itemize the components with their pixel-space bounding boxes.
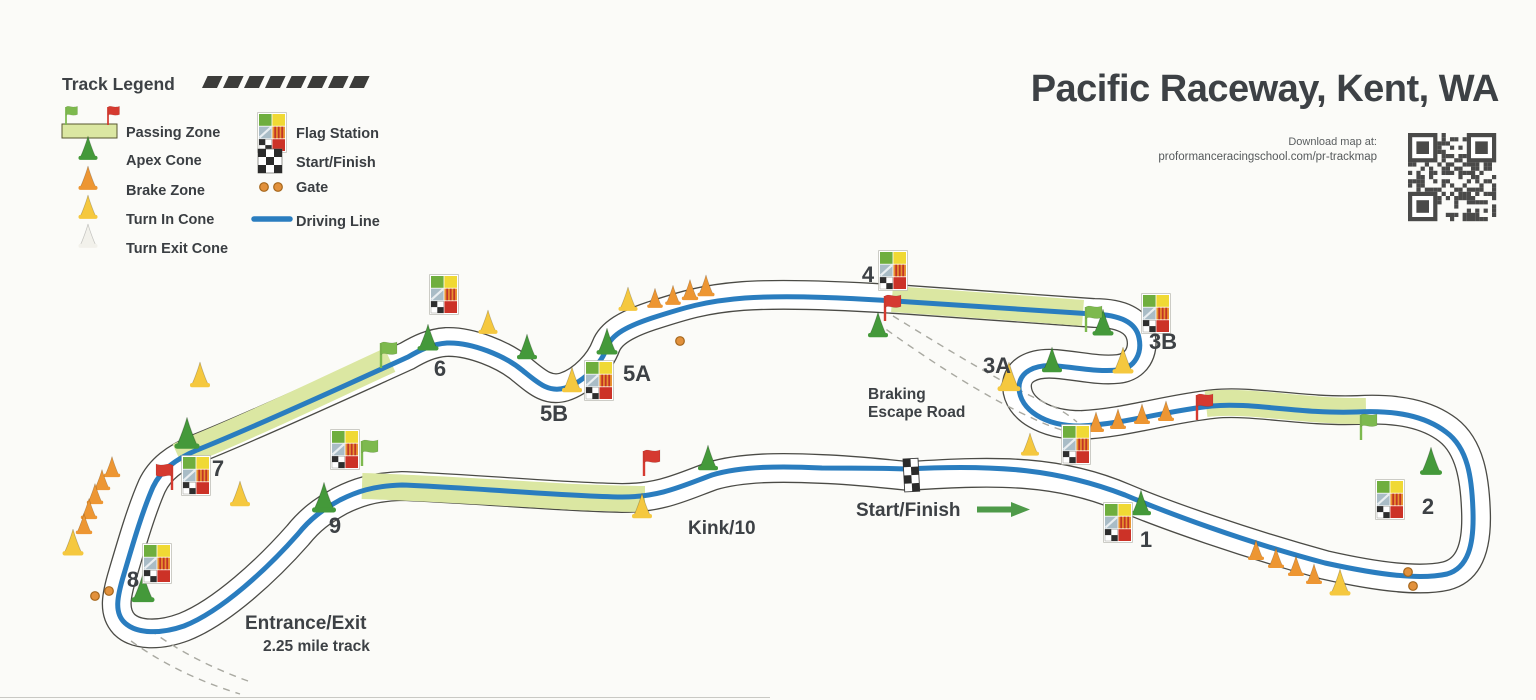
kink-label: Kink/10 [688,518,756,539]
apex-cone-marker [517,334,537,359]
apex-cone-marker [1420,447,1442,475]
flag-station-marker [143,544,172,584]
turnin-cone-marker [619,287,638,311]
legend-item-passing-zone: Passing Zone [126,125,220,141]
flag-station-marker [1376,480,1405,520]
turn-in-cone-icon [79,195,98,219]
turnin-cone-marker [190,362,210,387]
legend-item-turn-in-cone: Turn In Cone [126,212,214,228]
red-flag-marker [644,450,660,476]
start-finish-direction-arrow [977,502,1030,517]
flag-station-marker [182,456,211,496]
turn-label-1: 1 [1140,527,1152,552]
legend-item-brake-zone: Brake Zone [126,183,205,199]
gate-icon [260,183,283,192]
turn-label-9: 9 [329,513,341,538]
start-finish-band [903,458,920,492]
legend-item-flag-station: Flag Station [296,126,379,142]
flag-station-marker [1142,294,1171,334]
entrance-exit-road-line [131,641,240,694]
flag-station-marker [331,430,360,470]
turn-label-2: 2 [1422,494,1434,519]
gate-marker [1404,568,1413,577]
download-url: proformanceracingschool.com/pr-trackmap [1158,151,1377,163]
qr-code [1408,133,1496,221]
track-road [117,295,1476,634]
green-flag-marker [362,440,378,466]
turnin-cone-marker [230,481,250,506]
apex-cone-icon [79,136,98,160]
braking-escape-label-line2: Escape Road [868,404,965,421]
track-map-page: 123A3B45A5B6789 Start/Finish Kink/10 Bra… [0,0,1536,700]
flag-station-marker [1104,503,1133,543]
gate-marker [676,337,685,346]
track-length-label: 2.25 mile track [263,638,370,655]
page-title: Pacific Raceway, Kent, WA [1031,68,1499,110]
gate-marker [105,587,114,596]
legend: Track Legend Passing Zone Apex Cone Brak… [62,74,380,257]
brake-cone-marker [104,456,120,477]
download-note: Download map at: [1288,136,1377,148]
start-finish-icon [258,149,282,173]
flag-station-icon [258,113,287,153]
green-flag-marker [1361,414,1377,440]
legend-item-start-finish: Start/Finish [296,155,376,171]
track-surface [117,295,1476,634]
turnin-cone-marker [1021,433,1039,456]
apex-cone-marker [698,445,718,470]
map-text-labels: Start/Finish Kink/10 Braking Escape Road… [245,386,1030,655]
gate-marker [91,592,100,601]
legend-item-turn-exit-cone: Turn Exit Cone [126,241,228,257]
legend-item-apex-cone: Apex Cone [126,153,202,169]
gate-marker [1409,582,1418,591]
turn-label-8: 8 [127,567,139,592]
braking-escape-label-line1: Braking [868,386,926,403]
turn-label-3A: 3A [983,353,1011,378]
legend-item-gate: Gate [296,180,328,196]
turn-label-4: 4 [862,262,875,287]
flag-station-marker [585,361,614,401]
flag-station-marker [430,275,459,315]
turnin-cone-marker [479,310,498,334]
flag-station-marker [1062,425,1091,465]
brake-zone-icon [79,166,98,190]
turn-label-3B: 3B [1149,329,1177,354]
start-finish-label: Start/Finish [856,500,961,521]
turn-exit-cone-icon [79,224,98,248]
turn-label-6: 6 [434,356,446,381]
legend-title-dashes [202,76,370,88]
legend-item-driving-line: Driving Line [296,214,380,230]
entrance-exit-label: Entrance/Exit [245,613,367,634]
turn-label-7: 7 [212,456,224,481]
passing-zone-icon [62,106,120,138]
legend-title: Track Legend [62,74,175,94]
flag-station-marker [879,251,908,291]
turn-label-5B: 5B [540,401,568,426]
turn-label-5A: 5A [623,361,651,386]
track-map: 123A3B45A5B6789 Start/Finish Kink/10 Bra… [0,0,1536,700]
